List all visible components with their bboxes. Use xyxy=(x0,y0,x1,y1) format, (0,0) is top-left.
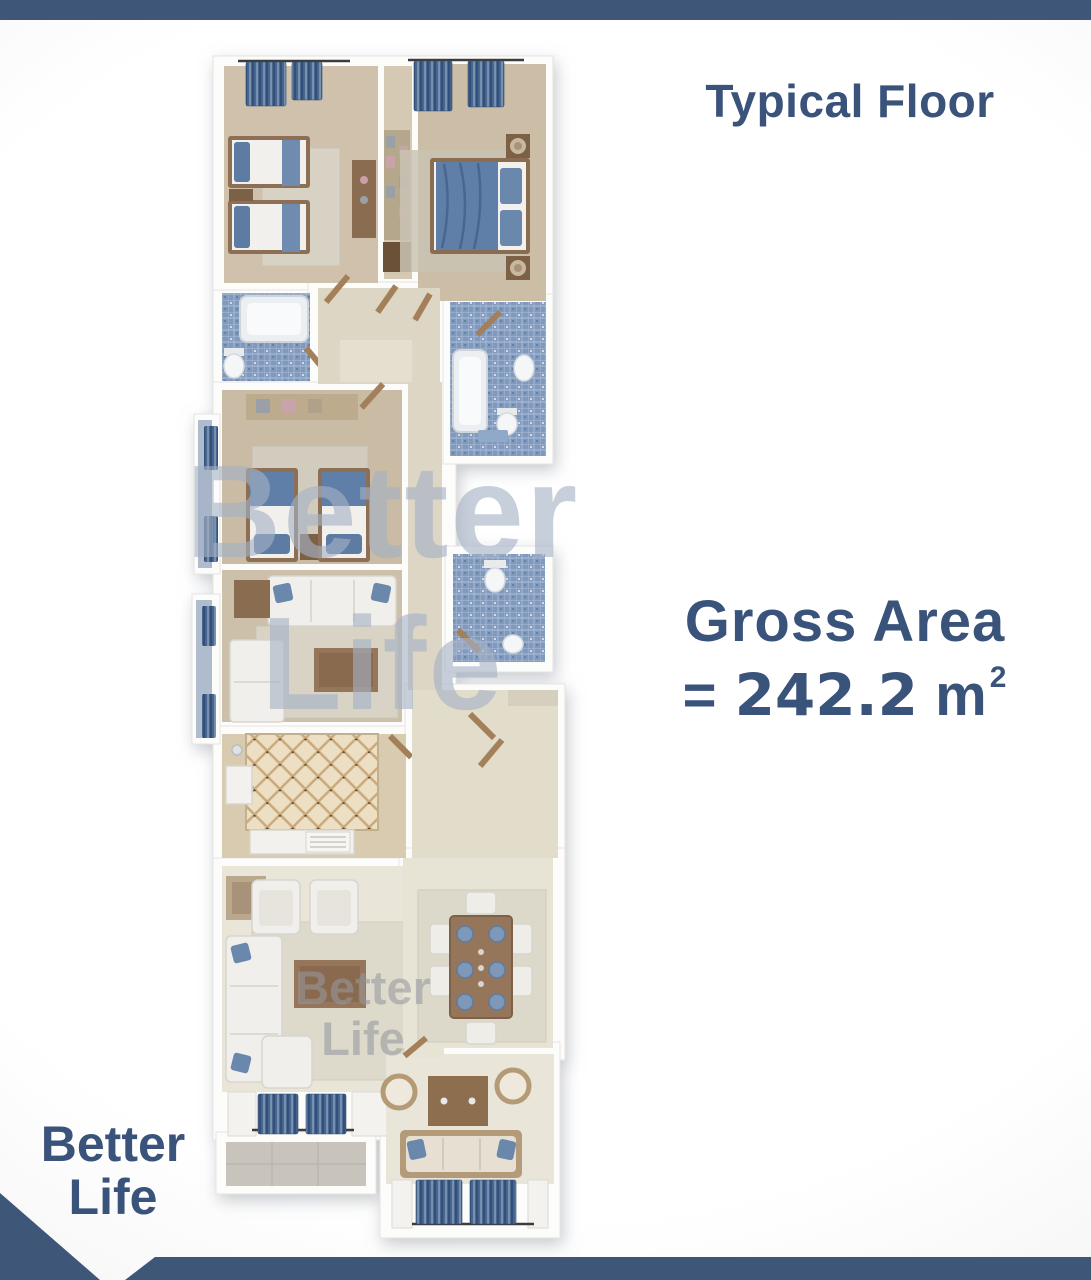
bottom-border-bar xyxy=(0,1257,1091,1280)
equals-sign: = xyxy=(683,663,718,728)
sofa xyxy=(400,1130,522,1178)
brand-line1: Better xyxy=(18,1118,208,1171)
twin-bed xyxy=(246,468,298,562)
coffee-table xyxy=(294,960,366,1008)
gross-area-label: Gross Area xyxy=(630,588,1060,655)
poster-canvas: Better Life Better Life Typical Floor Gr… xyxy=(0,0,1091,1280)
chaise xyxy=(230,640,284,722)
twin-bed xyxy=(318,468,370,562)
twin-bed xyxy=(228,136,310,188)
double-bed xyxy=(430,158,530,254)
wc xyxy=(453,554,545,662)
bedroom-2 xyxy=(222,382,402,564)
toilet xyxy=(224,348,244,378)
armchair xyxy=(262,1036,312,1088)
wardrobe xyxy=(246,394,358,420)
nightstand xyxy=(300,534,318,560)
terrace xyxy=(226,1142,366,1186)
kitchen-counter xyxy=(250,830,354,854)
gross-area-value: = 242.2 m2 xyxy=(630,661,1060,729)
side-table xyxy=(234,580,270,618)
wicker-chair xyxy=(497,1070,529,1102)
sitting-room xyxy=(222,570,402,722)
armchair xyxy=(310,880,358,934)
sofa xyxy=(268,576,396,626)
nightstand xyxy=(506,256,530,280)
wicker-chair xyxy=(383,1076,415,1108)
bathroom-2 xyxy=(450,302,546,456)
bedroom-1 xyxy=(224,61,378,283)
area-unit: m xyxy=(935,663,988,728)
area-number: 242.2 xyxy=(735,661,918,729)
dining-area xyxy=(403,858,553,1048)
nightstand xyxy=(506,134,530,158)
coffee-table xyxy=(314,648,378,692)
kitchen xyxy=(222,734,413,858)
dressing-table xyxy=(352,160,376,238)
master-bedroom xyxy=(400,60,546,301)
top-border-bar xyxy=(0,0,1091,20)
sink xyxy=(503,635,523,653)
nightstand xyxy=(229,189,253,201)
bathtub xyxy=(240,296,308,342)
gross-area-block: Gross Area = 242.2 m2 xyxy=(630,588,1060,729)
dining-table xyxy=(450,916,512,1018)
bathtub xyxy=(453,350,487,432)
armchair xyxy=(252,880,300,934)
brand-logotype: Better Life xyxy=(18,1118,208,1224)
kitchen-table xyxy=(226,766,252,804)
sink xyxy=(514,355,534,381)
area-unit-exponent: 2 xyxy=(990,661,1008,694)
entry-hall xyxy=(412,690,558,858)
brand-line2: Life xyxy=(18,1171,208,1224)
bath-mat xyxy=(478,430,508,442)
kitchen-sink xyxy=(232,745,242,755)
tv-cabinet xyxy=(428,1076,488,1126)
page-title: Typical Floor xyxy=(660,74,1040,128)
twin-bed xyxy=(228,200,310,254)
toilet xyxy=(484,560,506,592)
